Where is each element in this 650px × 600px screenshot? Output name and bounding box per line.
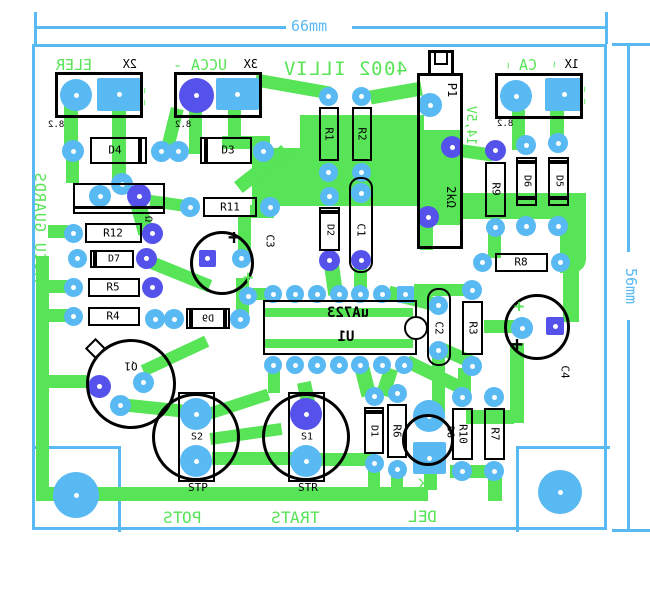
tilde-mark-icon: ~ bbox=[139, 99, 150, 105]
d8-label: D8 bbox=[445, 426, 456, 438]
s2-label: S2 bbox=[191, 432, 203, 442]
r3-label: R3 bbox=[467, 321, 480, 334]
mounting-hole bbox=[538, 470, 582, 514]
polarity-plus: + bbox=[243, 268, 253, 288]
pad bbox=[452, 387, 472, 407]
dimension-line-right-bottom bbox=[627, 320, 630, 530]
pitch-note: 8.2 bbox=[175, 120, 191, 130]
pad bbox=[64, 307, 83, 326]
pad bbox=[330, 356, 348, 374]
s2-value: STP bbox=[188, 483, 200, 493]
mount-corner-line bbox=[517, 446, 610, 449]
pad bbox=[320, 187, 339, 206]
diode-cathode-bar bbox=[138, 139, 142, 162]
led-d8-outline bbox=[402, 414, 454, 466]
p1-value: 2kΩ bbox=[444, 186, 458, 208]
d3-label: D3 bbox=[221, 144, 234, 157]
diode-cathode-bar bbox=[204, 139, 208, 162]
r7-label: R7 bbox=[489, 427, 502, 440]
trimmer-p1-notch bbox=[436, 53, 446, 63]
connector-x3-outline bbox=[174, 72, 262, 118]
mount-corner-line bbox=[516, 446, 519, 532]
pad bbox=[365, 454, 384, 473]
polarity-plus: + bbox=[511, 332, 523, 356]
led-cathode-mark: K bbox=[418, 477, 426, 493]
c1-label: C1 bbox=[355, 223, 368, 236]
u1-label: U1 bbox=[338, 329, 355, 345]
pad bbox=[62, 140, 84, 162]
diode-cathode-bar bbox=[518, 160, 535, 164]
pad bbox=[548, 133, 568, 153]
pad bbox=[462, 280, 482, 300]
pad bbox=[145, 309, 165, 329]
r6-label: R6 bbox=[391, 424, 404, 437]
rele-label: RELE bbox=[56, 56, 92, 74]
diode-cathode-bar bbox=[518, 196, 535, 200]
r11-label: R11 bbox=[220, 201, 240, 214]
pad bbox=[551, 253, 570, 272]
tilde-mark-icon: ~ bbox=[139, 87, 150, 93]
pad bbox=[388, 384, 407, 403]
board-height-label: 56mm bbox=[622, 268, 640, 304]
dimension-tick bbox=[34, 12, 37, 44]
pitch-note: 8.2 bbox=[497, 119, 513, 129]
dimension-tick bbox=[612, 529, 650, 532]
pad bbox=[462, 356, 482, 376]
pad bbox=[168, 141, 189, 162]
x3-label: X3 bbox=[244, 57, 258, 71]
diode-cathode-bar bbox=[93, 251, 97, 266]
ac-tilde-icon: ~ bbox=[502, 62, 515, 69]
led-label: LED bbox=[408, 507, 437, 526]
pad bbox=[485, 140, 506, 161]
minus-accu-label: - ACCU bbox=[173, 56, 227, 74]
jumper-outline bbox=[73, 183, 165, 214]
q1-label: Q1 bbox=[124, 360, 137, 373]
pad bbox=[180, 197, 200, 217]
polarity-plus: + bbox=[514, 297, 524, 317]
pad bbox=[142, 277, 163, 298]
pad bbox=[452, 461, 472, 481]
r1-label: R1 bbox=[323, 127, 336, 140]
mounting-hole bbox=[53, 472, 99, 518]
pad bbox=[351, 356, 369, 374]
r5-label: R5 bbox=[106, 281, 119, 294]
pad bbox=[319, 87, 338, 106]
pad bbox=[136, 248, 157, 269]
p1-label: P1 bbox=[445, 83, 459, 97]
tilde-mark-icon: ~ bbox=[579, 98, 590, 104]
pad bbox=[319, 163, 338, 182]
c4-label: C4 bbox=[559, 365, 572, 378]
pitch-note: 8.2 bbox=[48, 120, 64, 130]
pad bbox=[64, 278, 83, 297]
start-label: START bbox=[271, 508, 319, 527]
r10-label: R10 bbox=[457, 424, 470, 444]
diode-cathode-bar bbox=[189, 310, 193, 327]
polarity-plus: + bbox=[228, 225, 240, 249]
dimension-line-right-top bbox=[627, 46, 630, 252]
d1-label: D1 bbox=[369, 425, 380, 437]
connector-x2-outline bbox=[55, 72, 143, 118]
pad bbox=[68, 249, 87, 268]
ic-u1-notch bbox=[404, 316, 428, 340]
r8-label: R8 bbox=[514, 256, 527, 269]
pad bbox=[473, 253, 492, 272]
pad bbox=[308, 356, 326, 374]
d5-label: D5 bbox=[554, 175, 565, 187]
pad bbox=[264, 356, 282, 374]
pad bbox=[365, 387, 384, 406]
dimension-tick bbox=[605, 12, 608, 44]
ac-label: AC bbox=[519, 56, 537, 74]
d7-label: D7 bbox=[108, 254, 120, 265]
r4-label: R4 bbox=[106, 310, 119, 323]
d4-label: D4 bbox=[108, 144, 121, 157]
s1-value: STR bbox=[298, 483, 310, 493]
pad bbox=[373, 356, 391, 374]
pad bbox=[230, 309, 250, 329]
pad bbox=[319, 250, 340, 271]
r12-label: R12 bbox=[103, 227, 123, 240]
s1-label: S1 bbox=[301, 432, 313, 442]
pad bbox=[516, 216, 536, 236]
voltage-note: 14,5V bbox=[463, 106, 478, 145]
pad bbox=[239, 287, 257, 305]
pad bbox=[395, 356, 413, 374]
trimmer-p1-outline bbox=[417, 73, 463, 249]
pad bbox=[142, 223, 163, 244]
dimension-line-top-left bbox=[36, 26, 286, 29]
tilde-mark-icon: ~ bbox=[579, 86, 590, 92]
c3-label: C3 bbox=[264, 234, 277, 247]
pad bbox=[516, 135, 536, 155]
trace bbox=[48, 375, 88, 388]
dimension-tick bbox=[612, 43, 650, 46]
x2-label: X2 bbox=[123, 57, 137, 71]
board-title: VILLI 2004 bbox=[283, 58, 408, 80]
d6-label: D6 bbox=[522, 175, 533, 187]
r2-label: R2 bbox=[356, 127, 369, 140]
pad bbox=[484, 387, 504, 407]
stop-label: STOP bbox=[163, 508, 202, 527]
dimension-line-top-right bbox=[352, 26, 607, 29]
u1-value: uA723 bbox=[327, 305, 369, 321]
edge-note: ACCU GUARDS bbox=[31, 172, 49, 282]
pad bbox=[253, 141, 274, 162]
pad bbox=[286, 356, 304, 374]
x1-label: X1 bbox=[565, 57, 579, 71]
diode-cathode-bar bbox=[321, 210, 338, 214]
pad bbox=[164, 309, 184, 329]
pad bbox=[388, 460, 407, 479]
diode-cathode-bar bbox=[366, 410, 382, 414]
c2-label: C2 bbox=[433, 321, 446, 334]
r9-label: R9 bbox=[490, 182, 503, 195]
pad bbox=[352, 87, 371, 106]
pcb-layout-canvas: 66mm 56mm bbox=[0, 0, 650, 600]
ac-tilde-icon: ~ bbox=[548, 61, 561, 68]
d2-label: D2 bbox=[325, 224, 336, 236]
pad bbox=[260, 197, 280, 217]
pad bbox=[486, 218, 505, 237]
omega-mark: Ω bbox=[143, 216, 154, 222]
diode-cathode-bar bbox=[550, 196, 567, 200]
connector-x1-outline bbox=[495, 73, 583, 119]
pad bbox=[64, 224, 83, 243]
diode-cathode-bar bbox=[550, 160, 567, 164]
pad bbox=[484, 461, 504, 481]
diode-cathode-bar bbox=[223, 310, 227, 327]
pad bbox=[548, 216, 568, 236]
jumper-line bbox=[75, 206, 163, 209]
board-width-label: 66mm bbox=[291, 17, 327, 35]
d9-label: D9 bbox=[202, 314, 214, 325]
